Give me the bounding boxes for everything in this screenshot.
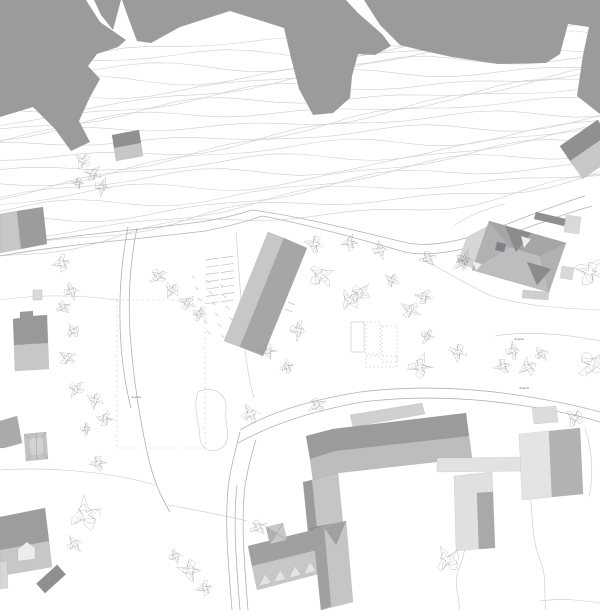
field-boundary bbox=[117, 300, 205, 448]
se-connector-strip bbox=[437, 457, 527, 472]
tree bbox=[310, 266, 334, 287]
tree bbox=[535, 347, 548, 361]
west-building-b-light bbox=[14, 343, 49, 371]
shaded-terrain-mass bbox=[0, 0, 600, 151]
tree bbox=[52, 254, 71, 272]
map-label-3: illegible bbox=[519, 386, 529, 390]
terrain-mass-center bbox=[122, 0, 391, 115]
tree bbox=[519, 357, 536, 376]
buildings bbox=[0, 120, 600, 610]
manor-outbuilding-a bbox=[564, 215, 581, 234]
se-building-b-dark bbox=[477, 492, 495, 549]
tree bbox=[96, 178, 111, 197]
tree bbox=[578, 352, 600, 377]
tree bbox=[166, 283, 179, 299]
tree bbox=[352, 284, 370, 303]
tree bbox=[408, 353, 435, 378]
tree bbox=[72, 495, 101, 531]
manor-chimney bbox=[495, 242, 506, 252]
tree bbox=[449, 344, 467, 362]
tree bbox=[177, 559, 202, 582]
sw-strip-building bbox=[0, 561, 8, 589]
tree bbox=[75, 154, 90, 168]
tree bbox=[506, 341, 520, 360]
tree bbox=[196, 580, 213, 596]
se-building-a-dark bbox=[549, 428, 583, 497]
map-label-1: illegible bbox=[131, 395, 141, 399]
manor-terrace bbox=[522, 290, 549, 300]
tree bbox=[80, 423, 90, 436]
tree bbox=[69, 382, 84, 398]
tree bbox=[56, 300, 71, 313]
sw-building-a bbox=[0, 416, 22, 448]
tree bbox=[401, 303, 420, 317]
tree bbox=[493, 359, 513, 373]
tree bbox=[573, 259, 600, 285]
tree bbox=[87, 393, 103, 409]
west-building-b-dark bbox=[13, 311, 48, 345]
site-plan-map: illegibleillegibleillegible bbox=[0, 0, 600, 610]
manor-outbuilding-b bbox=[560, 266, 574, 280]
tree bbox=[150, 269, 167, 282]
west-building-a-dark bbox=[17, 207, 47, 249]
tree bbox=[59, 352, 75, 364]
site-plan-canvas: illegibleillegibleillegible bbox=[0, 0, 600, 610]
terrain-mass-right bbox=[364, 0, 600, 114]
map-label-2: illegible bbox=[514, 337, 524, 341]
tree bbox=[250, 520, 267, 534]
tree bbox=[385, 274, 399, 288]
tree bbox=[414, 290, 433, 304]
tree bbox=[96, 411, 115, 426]
se-shed bbox=[532, 406, 558, 424]
tree bbox=[280, 359, 294, 373]
tree bbox=[89, 456, 108, 471]
tree bbox=[66, 535, 83, 551]
tree bbox=[290, 320, 306, 341]
tree bbox=[304, 236, 324, 253]
se-building-a-light bbox=[519, 431, 552, 500]
tree bbox=[567, 410, 583, 426]
tree bbox=[438, 546, 459, 571]
tree bbox=[67, 323, 79, 337]
tree bbox=[64, 283, 81, 301]
tree bbox=[419, 251, 437, 265]
cross-wing-light bbox=[312, 473, 343, 530]
main-building-entrance-marks bbox=[285, 302, 295, 312]
tree bbox=[84, 167, 101, 181]
tree bbox=[180, 296, 196, 309]
tree bbox=[421, 329, 435, 343]
tree bbox=[309, 398, 326, 411]
tree bbox=[169, 549, 183, 565]
garden-shed bbox=[33, 290, 42, 300]
